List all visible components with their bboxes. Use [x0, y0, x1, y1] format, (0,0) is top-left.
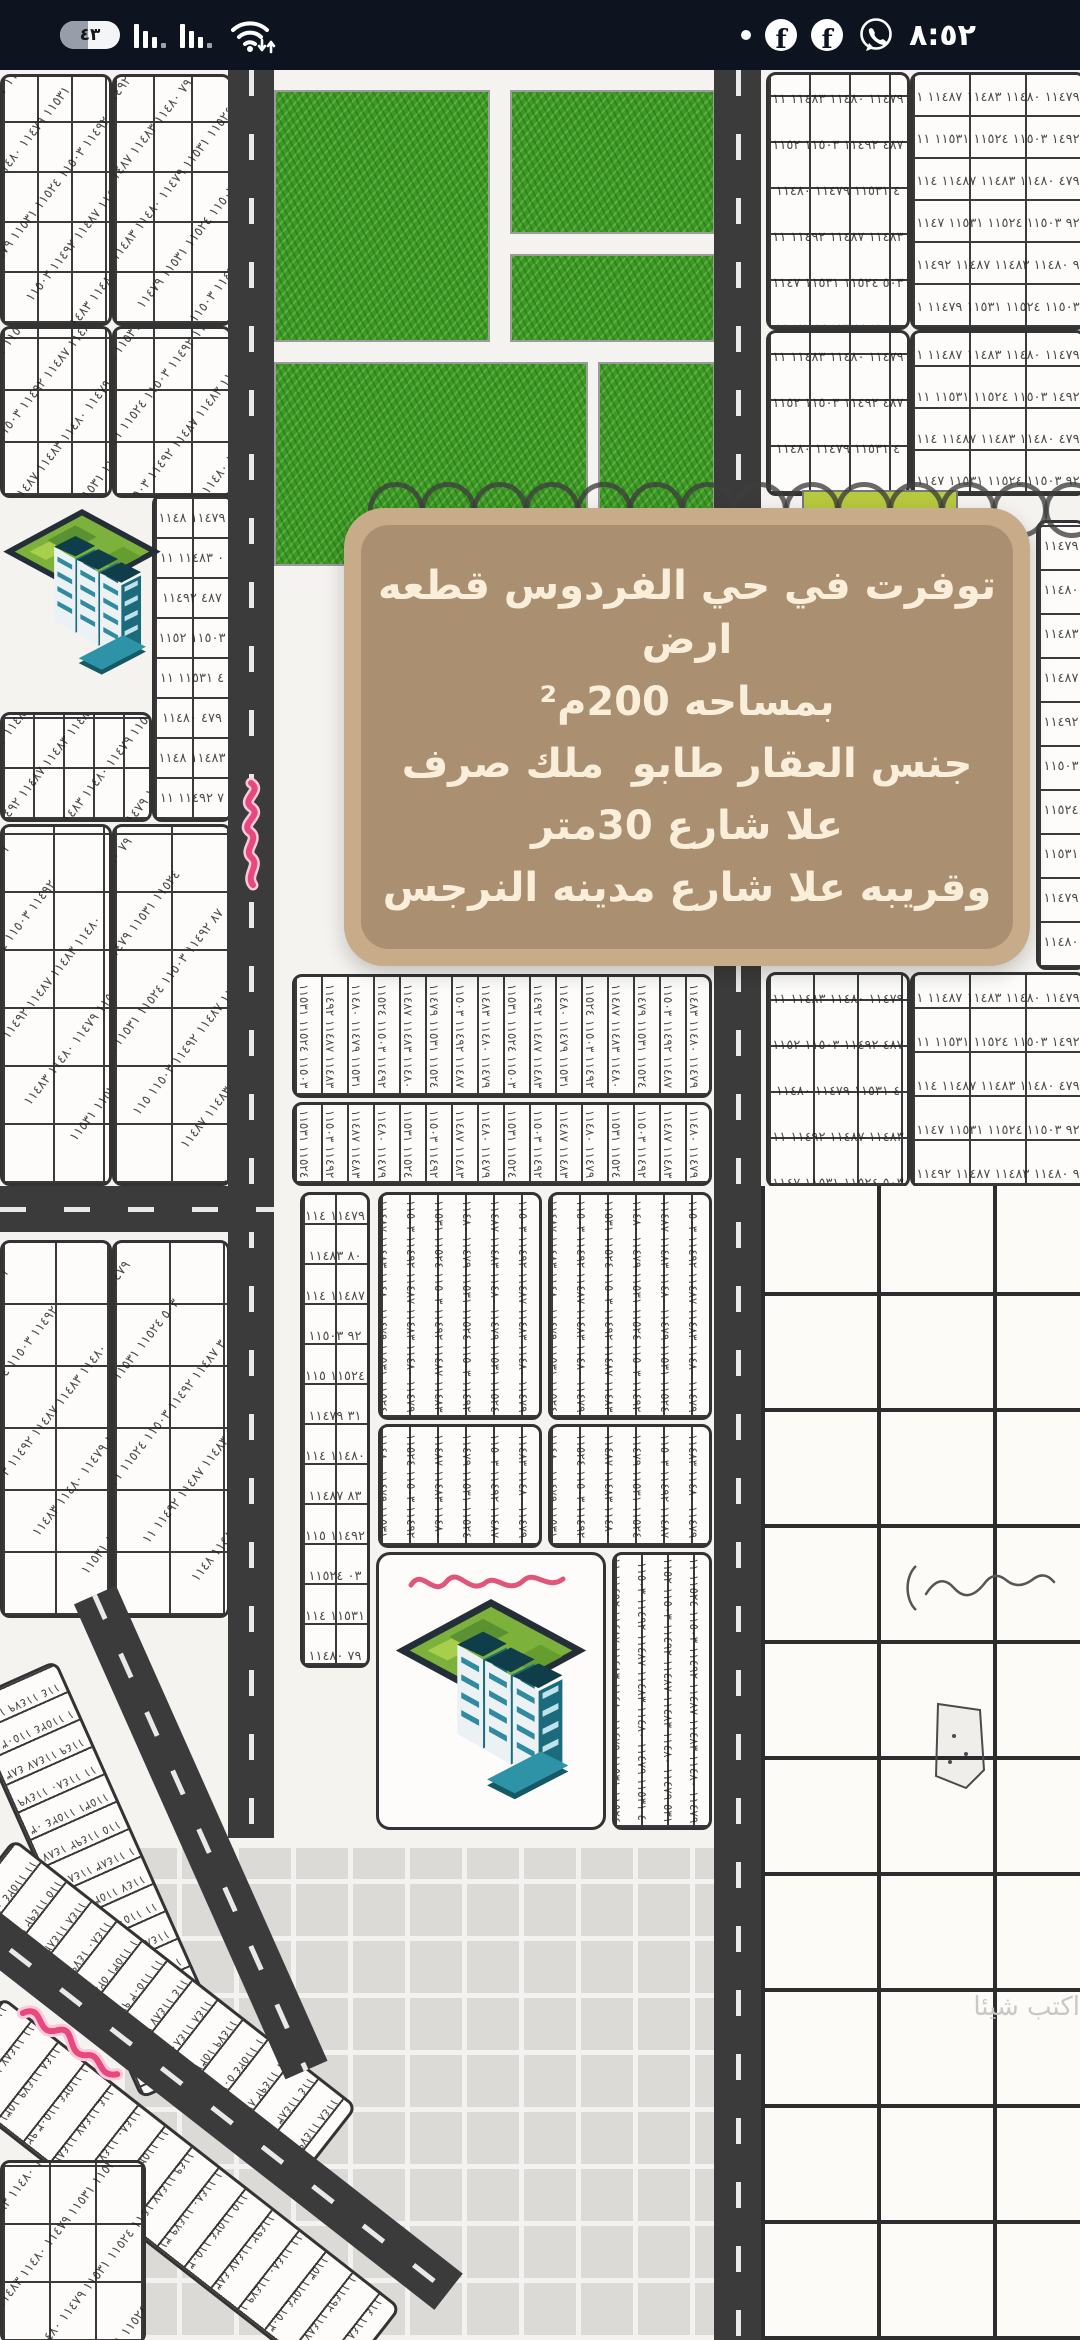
building-plot [376, 1552, 606, 1830]
status-right-group: f f ٨:٥٢ [741, 0, 976, 70]
road-name-scribble [229, 775, 273, 895]
signal-icon [180, 22, 212, 48]
road-vertical-right [714, 70, 761, 2340]
facebook-icon: f [765, 19, 797, 51]
plot-block: ١١٤٧٩ ١١٤٨٠ ١١٤٨٣ ١١٤٨٧ ١١٤٩٢ ١١٥٠٣ ١١٥٢… [910, 972, 1080, 1188]
signal-icon [134, 22, 166, 48]
plot-block: ١١٤٧٩ ١١٤٨٠ ١١٤٨٣ ١١٤٨٧ ١١٤٩٢ ١١٥٠٣ ١١٥٢… [112, 74, 232, 326]
plot-block: ١١٤٧٩ ١١٤٨٠ ١١٤٨٣ ١١٤٨٧ ١١٤٩٢ ١١٥٠٣ ١١٥٢… [112, 326, 232, 498]
plot-block: ١١٤٧٩ ١١٤٨٠ ١١٤٨٣ ١١٤٨٧ ١١٤٩٢ ١١٥٠٣ ١١٥٢… [548, 1192, 712, 1420]
plot-block: ١١٤٧٩ ١١٤٨٠ ١١٤٨٣ ١١٤٨٧ ١١٤٩٢ ١١٥٠٣ ١١٥٢… [0, 1240, 112, 1618]
isometric-building-illustration [387, 1595, 595, 1823]
building-label-scribble [403, 1561, 573, 1601]
plot-block: ١١٤٧٩ ١١٤٨٠ ١١٤٨٣ ١١٤٨٧ ١١٤٩٢ ١١٥٠٣ ١١٥٢… [612, 1552, 712, 1830]
plot-block: ١١٤٧٩ ١١٤٨٠ ١١٤٨٣ ١١٤٨٧ ١١٤٩٢ ١١٥٠٣ ١١٥٢… [766, 972, 910, 1188]
plot-block: ١١٤٧٩ ١١٤٨٠ ١١٤٨٣ ١١٤٨٧ ١١٤٩٢ ١١٥٠٣ ١١٥٢… [300, 1192, 370, 1668]
handwritten-note-scribble [886, 1552, 1076, 1622]
park-lawn [512, 92, 713, 232]
battery-percent: ٤٣ [60, 21, 120, 49]
park-lawn [512, 256, 713, 340]
plot-block: ١١٤٧٩ ١١٤٨٠ ١١٤٨٣ ١١٤٨٧ ١١٤٩٢ ١١٥٠٣ ١١٥٢… [0, 326, 112, 498]
whatsapp-icon [857, 16, 895, 54]
status-bar: ٤٣ f f ٨:٥٢ [0, 0, 1080, 70]
road-horizontal-left [0, 1186, 274, 1232]
notification-dot-icon [741, 30, 751, 40]
plot-block: ١١٤٧٩ ١١٤٨٠ ١١٤٨٣ ١١٤٨٧ ١١٤٩٢ ١١٥٠٣ ١١٥٢… [112, 824, 232, 1186]
isometric-building-illustration [0, 496, 164, 704]
plot-block: ١١٤٧٩ ١١٤٨٠ ١١٤٨٣ ١١٤٨٧ ١١٤٩٢ ١١٥٠٣ ١١٥٢… [0, 824, 112, 1186]
watermark-text: اكتب شيئا [948, 1992, 1080, 2022]
facebook-icon: f [811, 19, 843, 51]
phone-screen: ١١٤٧٩ ١١٤٨٠ ١١٤٨٣ ١١٤٨٧ ١١٤٩٢ ١١٥٠٣ ١١٥٢… [0, 0, 1080, 2340]
plot-block: ١١٤٧٩ ١١٤٨٠ ١١٤٨٣ ١١٤٨٧ ١١٤٩٢ ١١٥٠٣ ١١٥٢… [378, 1424, 542, 1548]
plot-block: ١١٤٧٩ ١١٤٨٠ ١١٤٨٣ ١١٤٨٧ ١١٤٩٢ ١١٥٠٣ ١١٥٢… [292, 1102, 712, 1186]
plot-block: ١١٤٧٩ ١١٤٨٠ ١١٤٨٣ ١١٤٨٧ ١١٤٩٢ ١١٥٠٣ ١١٥٢… [378, 1192, 542, 1420]
plot-block: ١١٤٧٩ ١١٤٨٠ ١١٤٨٣ ١١٤٨٧ ١١٤٩٢ ١١٥٠٣ ١١٥٢… [766, 72, 910, 330]
plot-block: ١١٤٧٩ ١١٤٨٠ ١١٤٨٣ ١١٤٨٧ ١١٤٩٢ ١١٥٠٣ ١١٥٢… [112, 1240, 230, 1618]
plot-block: ١١٤٧٩ ١١٤٨٠ ١١٤٨٣ ١١٤٨٧ ١١٤٩٢ ١١٥٠٣ ١١٥٢… [0, 712, 152, 822]
plot-map-image[interactable]: ١١٤٧٩ ١١٤٨٠ ١١٤٨٣ ١١٤٨٧ ١١٤٩٢ ١١٥٠٣ ١١٥٢… [0, 70, 1080, 2340]
plot-block: ١١٤٧٩ ١١٤٨٠ ١١٤٨٣ ١١٤٨٧ ١١٤٩٢ ١١٥٠٣ ١١٥٢… [766, 330, 910, 496]
plot-block: ١١٤٧٩ ١١٤٨٠ ١١٤٨٣ ١١٤٨٧ ١١٤٩٢ ١١٥٠٣ ١١٥٢… [910, 330, 1080, 496]
status-left-group: ٤٣ [60, 0, 276, 70]
battery-icon: ٤٣ [60, 21, 120, 49]
plot-block: ١١٤٧٩ ١١٤٨٠ ١١٤٨٣ ١١٤٨٧ ١١٤٩٢ ١١٥٠٣ ١١٥٢… [292, 974, 712, 1098]
plot-block: ١١٤٧٩ ١١٤٨٠ ١١٤٨٣ ١١٤٨٧ ١١٤٩٢ ١١٥٠٣ ١١٥٢… [1036, 520, 1080, 970]
ad-line: بمساحه 200م² [540, 675, 835, 729]
plot-block: ١١٤٧٩ ١١٤٨٠ ١١٤٨٣ ١١٤٨٧ ١١٤٩٢ ١١٥٠٣ ١١٥٢… [910, 72, 1080, 330]
park-lawn [276, 92, 488, 340]
ad-line: وقريبه علا شارع مدينه النرجس [383, 861, 991, 915]
plot-block: ١١٤٧٩ ١١٤٨٠ ١١٤٨٣ ١١٤٨٧ ١١٤٩٢ ١١٥٠٣ ١١٥٢… [0, 74, 112, 326]
survey-grid [761, 1186, 1080, 2340]
stamp-sketch [926, 1696, 992, 1796]
ad-card: توفرت في حي الفردوس قطعه ارض بمساحه 200م… [344, 508, 1030, 966]
ad-card-panel: توفرت في حي الفردوس قطعه ارض بمساحه 200م… [361, 525, 1013, 949]
ad-line: علا شارع 30متر [531, 799, 843, 853]
plot-block: ١١٤٧٩ ١١٤٨٠ ١١٤٨٣ ١١٤٨٧ ١١٤٩٢ ١١٥٠٣ ١١٥٢… [0, 2160, 146, 2340]
wifi-icon [226, 14, 276, 56]
plot-block: ١١٤٧٩ ١١٤٨٠ ١١٤٨٣ ١١٤٨٧ ١١٤٩٢ ١١٥٠٣ ١١٥٢… [152, 494, 232, 822]
ad-line: جنس العقار طابو ملك صرف [402, 737, 973, 791]
clock-time: ٨:٥٢ [909, 18, 976, 53]
ad-line: توفرت في حي الفردوس قطعه ارض [371, 559, 1003, 667]
plot-block: ١١٤٧٩ ١١٤٨٠ ١١٤٨٣ ١١٤٨٧ ١١٤٩٢ ١١٥٠٣ ١١٥٢… [548, 1424, 712, 1548]
road-vertical-left [228, 70, 274, 1838]
